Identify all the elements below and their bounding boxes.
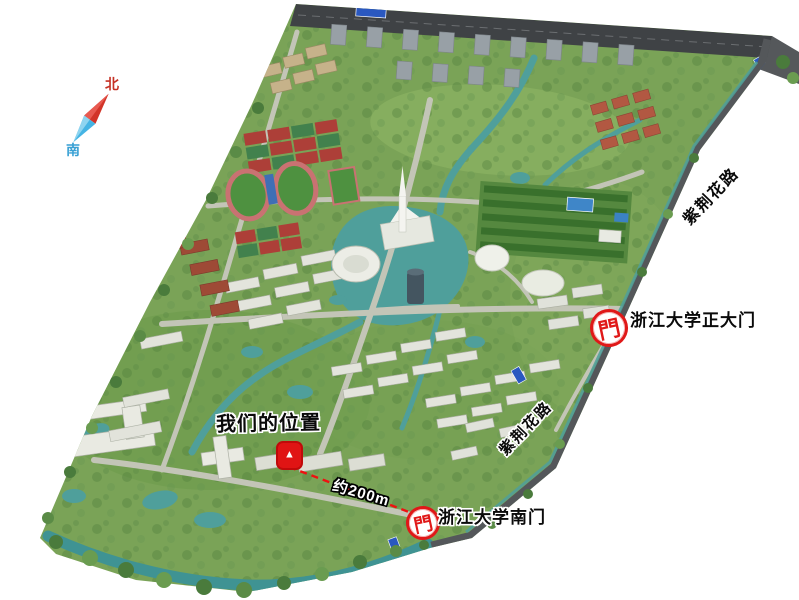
road-sign <box>734 21 761 32</box>
tent-roof-hall <box>522 270 564 296</box>
gate-glyph: 門 <box>411 508 435 538</box>
location-pin-icon: ▲ <box>276 441 303 470</box>
cylinder-tower <box>407 272 424 304</box>
south-gate-label: 浙江大学南门 <box>438 508 546 528</box>
compass-north-label: 北 <box>105 74 119 94</box>
page: 北 南 我们的位置 ▲ 约200m 門 浙江大学南门 門 浙江大学正大门 紫荆花… <box>0 0 799 600</box>
our-position-label: 我们的位置 <box>216 412 321 437</box>
dome-building <box>475 245 509 271</box>
gate-glyph: 門 <box>595 310 623 346</box>
road-sign <box>356 6 387 18</box>
main-gate-label: 浙江大学正大门 <box>630 311 756 331</box>
swimming-pool <box>567 197 594 212</box>
compass-south-label: 南 <box>66 140 80 160</box>
pin-triangle-glyph: ▲ <box>284 450 295 461</box>
compass: 北 南 <box>52 64 162 169</box>
spire-tower <box>399 196 406 232</box>
